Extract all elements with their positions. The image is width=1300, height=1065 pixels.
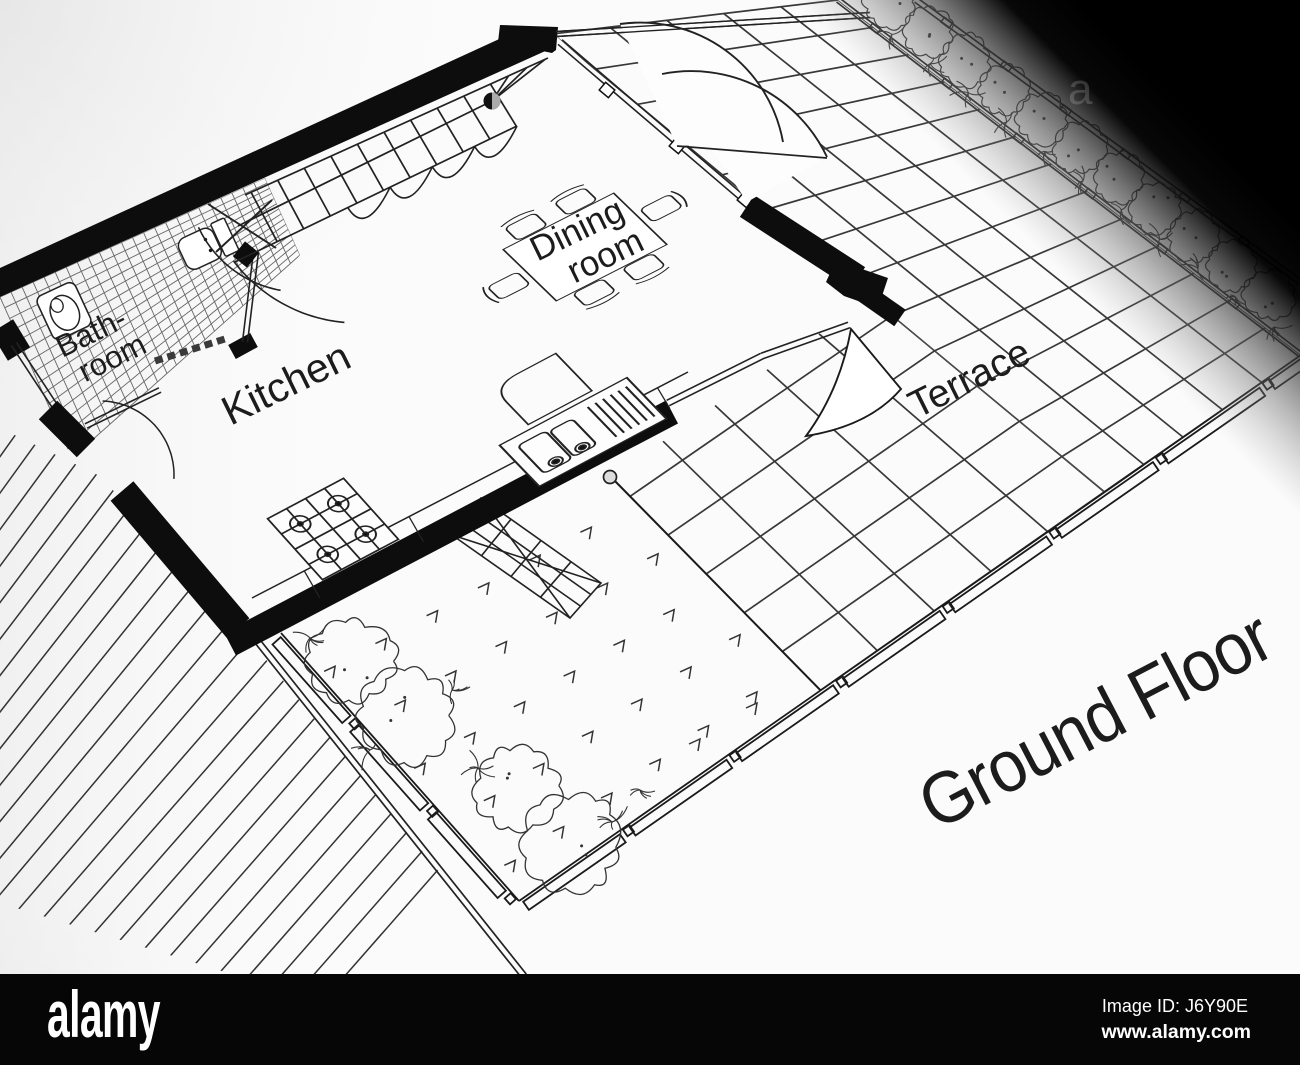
svg-text:Image ID: J6Y90E: Image ID: J6Y90E (1102, 996, 1248, 1016)
svg-text:alamy: alamy (47, 977, 161, 1052)
svg-text:a: a (1068, 65, 1093, 114)
svg-text:www.alamy.com: www.alamy.com (1100, 1021, 1251, 1043)
